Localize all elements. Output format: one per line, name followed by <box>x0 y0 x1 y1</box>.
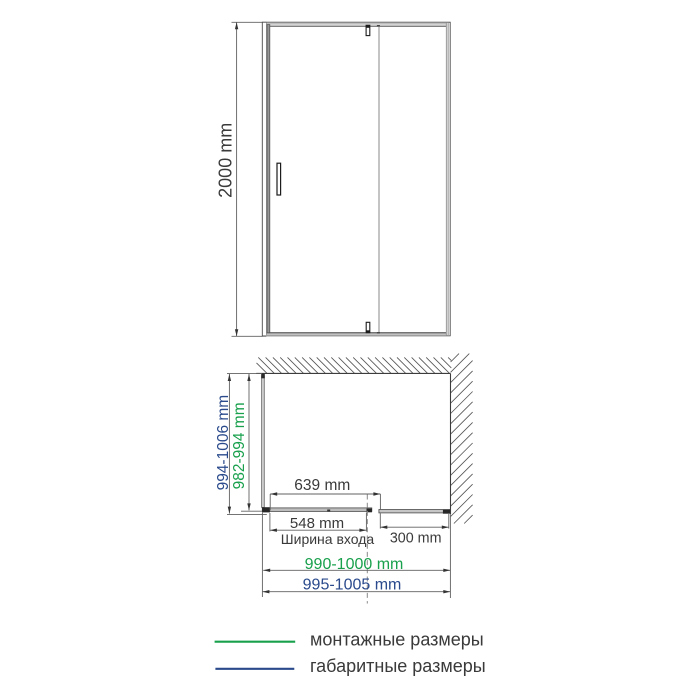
svg-text:2000 mm: 2000 mm <box>215 123 235 198</box>
svg-text:982-994 mm: 982-994 mm <box>231 402 248 489</box>
svg-text:Ширина входа: Ширина входа <box>281 531 375 547</box>
svg-text:548 mm: 548 mm <box>290 515 344 532</box>
svg-text:990-1000 mm: 990-1000 mm <box>305 556 404 573</box>
svg-text:994-1006 mm: 994-1006 mm <box>215 395 232 491</box>
svg-text:габаритные размеры: габаритные размеры <box>310 656 486 676</box>
svg-text:300 mm: 300 mm <box>390 531 442 547</box>
svg-text:монтажные размеры: монтажные размеры <box>310 630 484 650</box>
svg-text:639 mm: 639 mm <box>294 477 350 494</box>
svg-text:995-1005 mm: 995-1005 mm <box>303 577 402 594</box>
